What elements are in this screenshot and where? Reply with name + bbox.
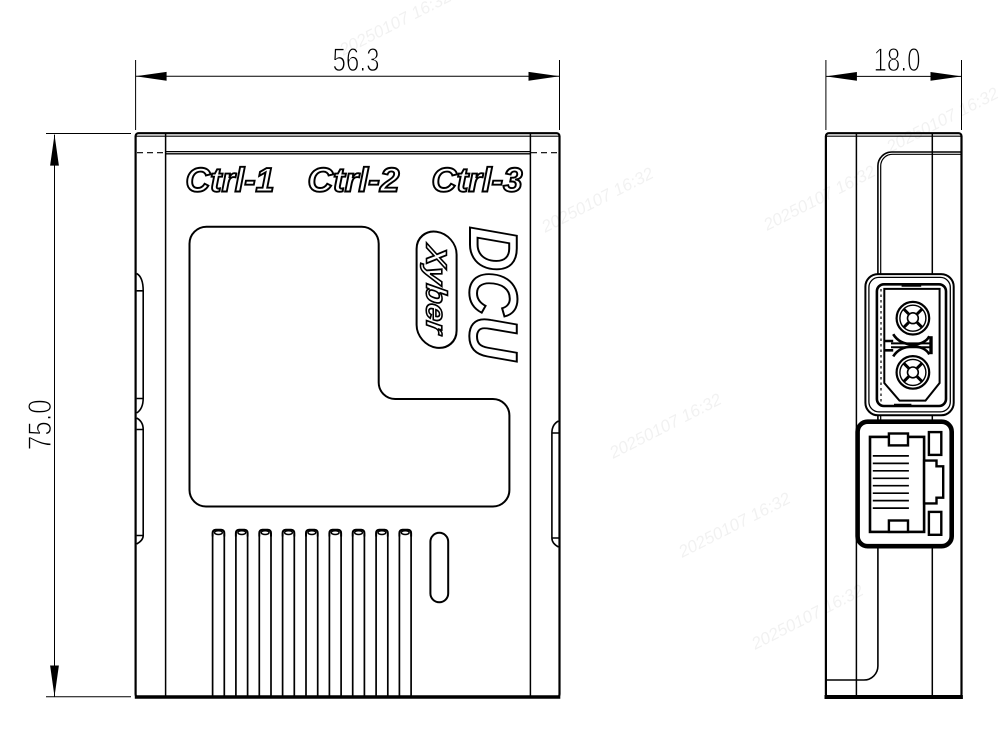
svg-text:DCU: DCU [455, 226, 531, 362]
svg-text:Xyber: Xyber [420, 241, 452, 338]
svg-text:18.0: 18.0 [874, 41, 921, 78]
svg-text:Ctrl-2: Ctrl-2 [308, 162, 400, 200]
svg-text:75.0: 75.0 [21, 399, 58, 450]
svg-text:Ctrl-3: Ctrl-3 [432, 162, 523, 200]
svg-text:Ctrl-1: Ctrl-1 [186, 162, 275, 200]
